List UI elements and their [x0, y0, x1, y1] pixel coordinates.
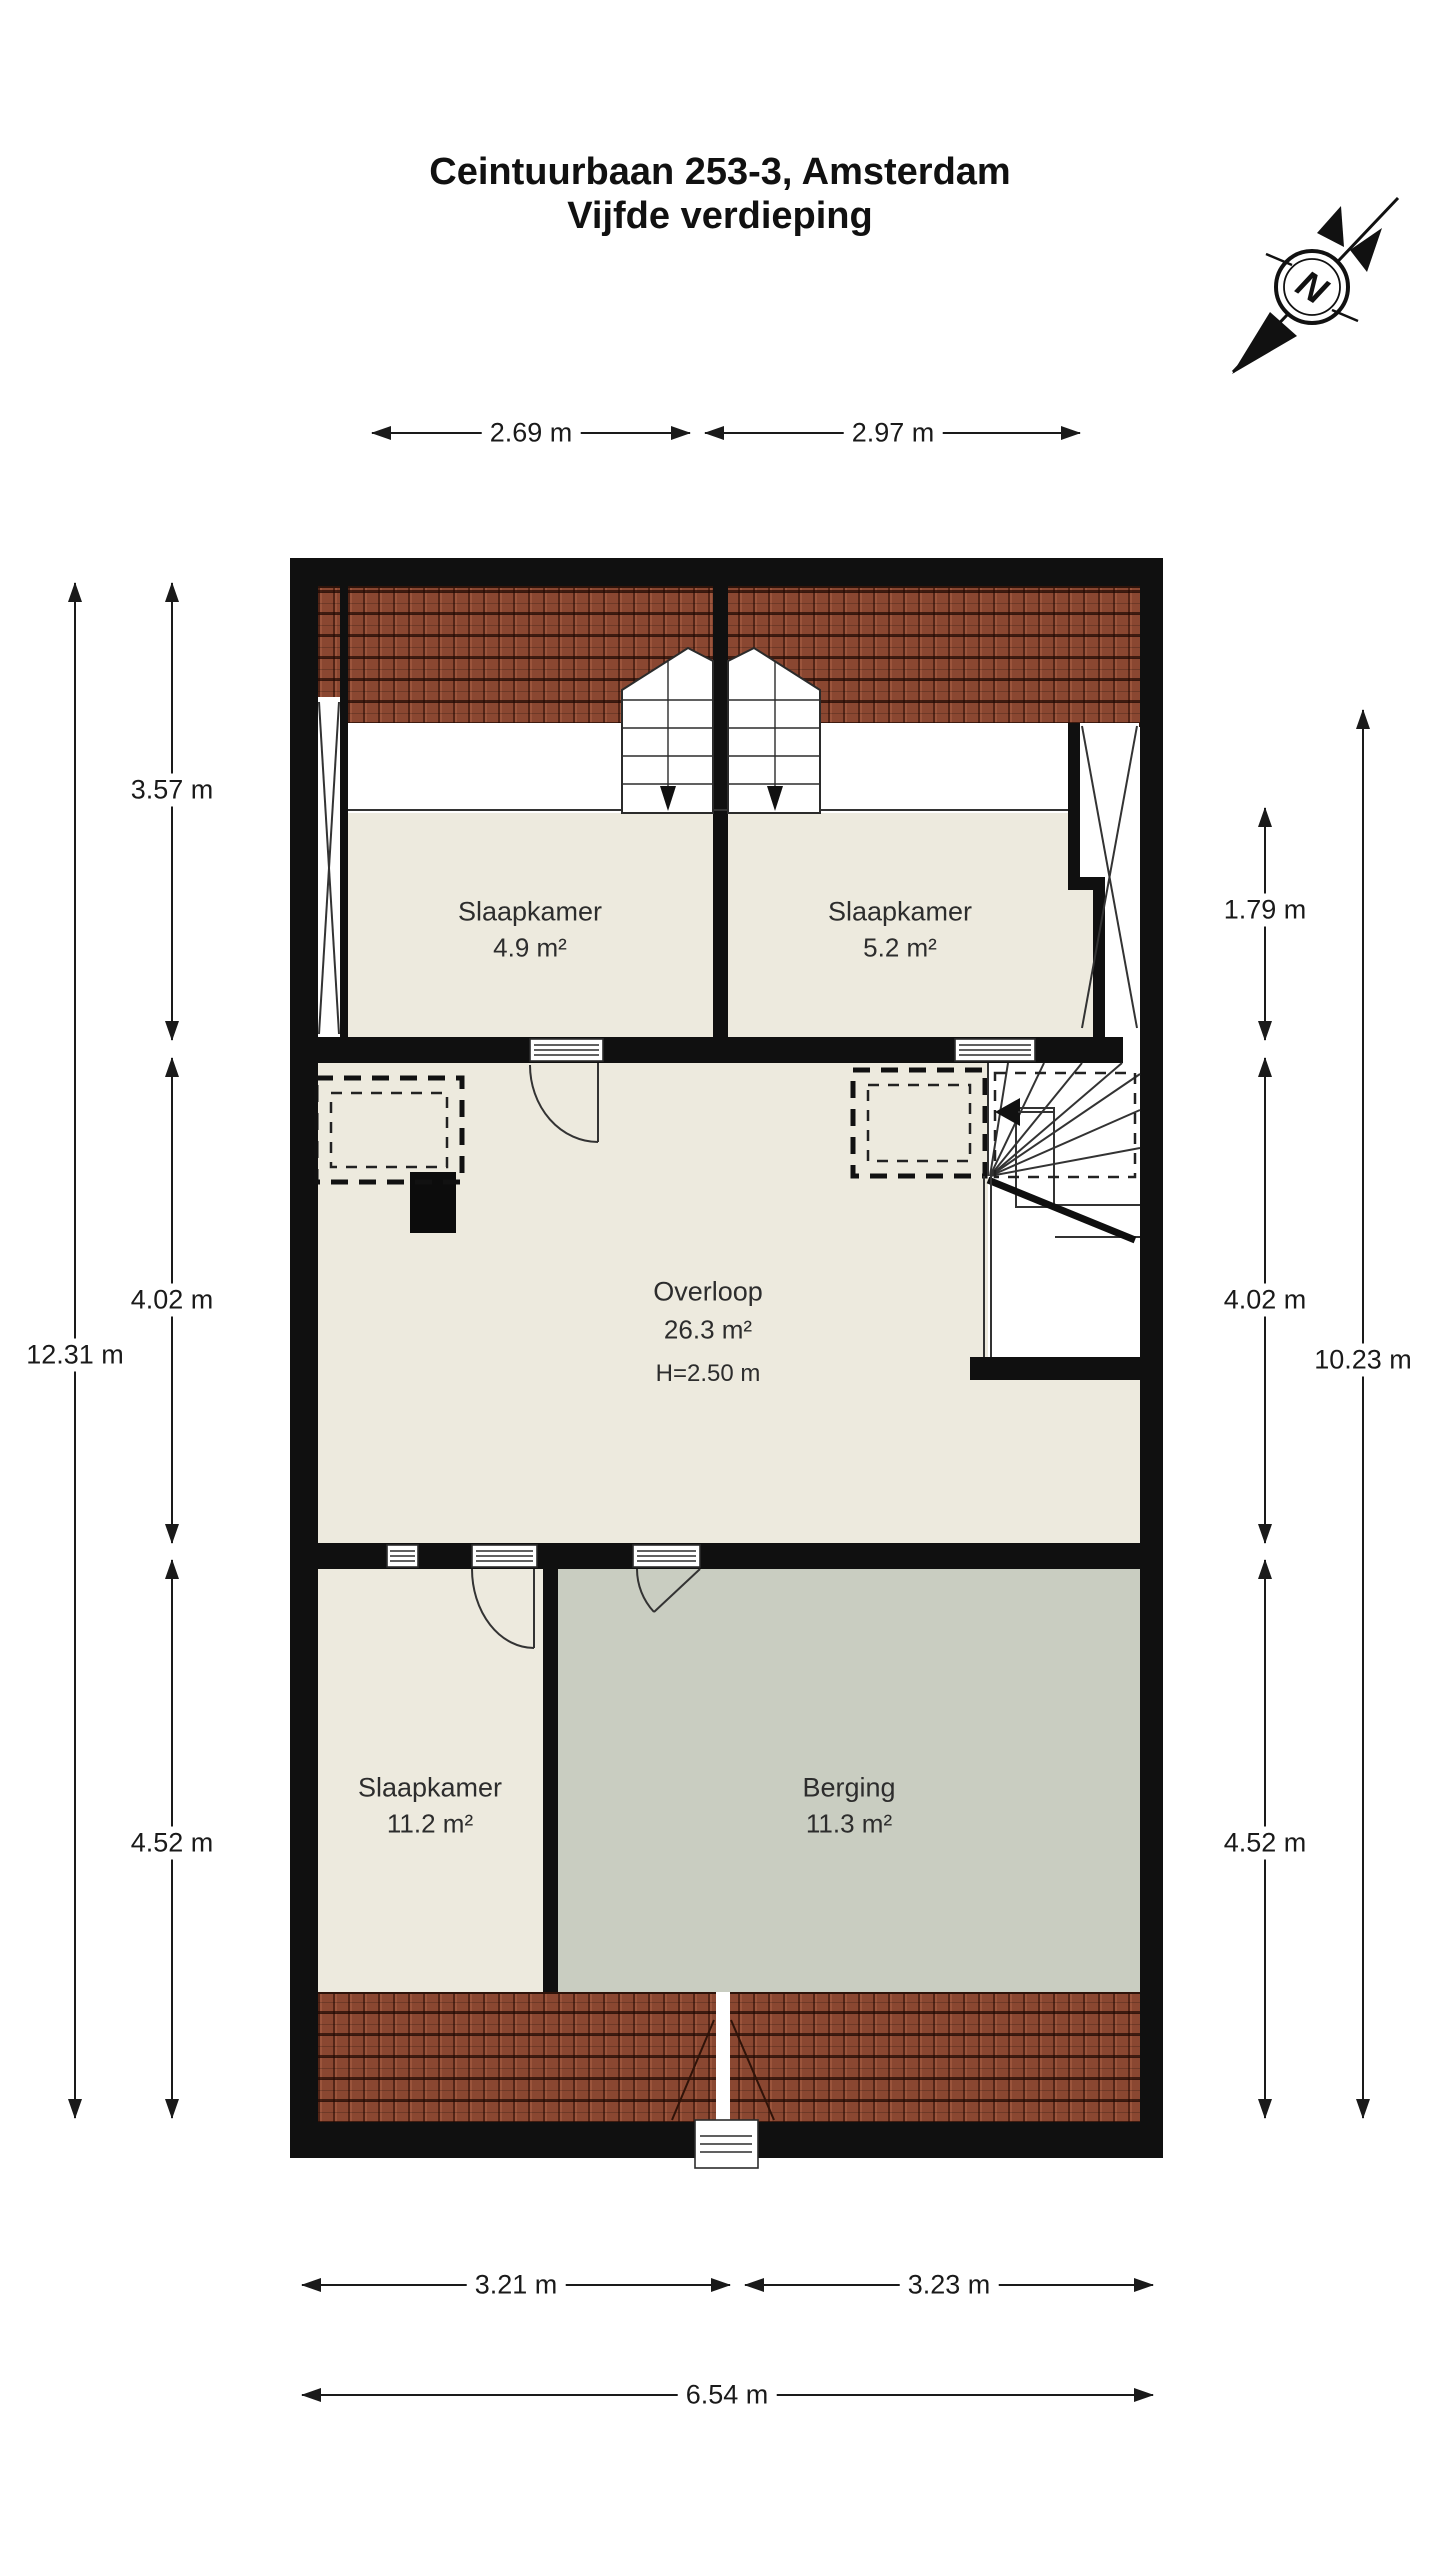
- side-window-left-icon: [319, 702, 339, 1034]
- room-label-bedroom-tl: Slaapkamer: [458, 897, 602, 928]
- room-label-storage: Berging: [802, 1773, 895, 1804]
- room-area-bedroom-tr: 5.2 m²: [863, 933, 937, 964]
- dimension-label: 3.57 m: [123, 774, 222, 807]
- side-window-right-icon: [1082, 726, 1137, 1028]
- door-storage: [637, 1569, 700, 1612]
- dimension-label: 3.23 m: [900, 2269, 999, 2302]
- compass-icon: N: [1232, 198, 1398, 374]
- window-symbol: [530, 1039, 603, 1061]
- dimension-label: 6.54 m: [678, 2379, 777, 2412]
- window-symbol: [633, 1545, 700, 1567]
- room-label-bedroom-b: Slaapkamer: [358, 1773, 502, 1804]
- door-bedroom-b: [472, 1569, 534, 1648]
- dimension-label: 10.23 m: [1306, 1344, 1420, 1377]
- room-area-bedroom-tl: 4.9 m²: [493, 933, 567, 964]
- skylight-left: [316, 1078, 462, 1182]
- dimension-label: 3.21 m: [467, 2269, 566, 2302]
- room-area-storage: 11.3 m²: [806, 1809, 892, 1840]
- dimension-label: 12.31 m: [18, 1339, 132, 1372]
- staircase: [984, 1063, 1140, 1357]
- room-area-bedroom-b: 11.2 m²: [387, 1809, 473, 1840]
- floorplan-canvas: Ceintuurbaan 253-3, Amsterdam Vijfde ver…: [0, 0, 1440, 2560]
- dormer-window-left: [622, 648, 713, 813]
- roof-valley-lines: [672, 2020, 774, 2120]
- dimension-label: 4.02 m: [123, 1284, 222, 1317]
- window-symbol: [472, 1545, 537, 1567]
- room-label-bedroom-tr: Slaapkamer: [828, 897, 972, 928]
- dimension-label: 4.52 m: [1216, 1827, 1315, 1860]
- dimension-label: 1.79 m: [1216, 894, 1315, 927]
- dimension-label: 2.97 m: [844, 417, 943, 450]
- dimension-label: 2.69 m: [482, 417, 581, 450]
- window-symbol: [387, 1545, 418, 1567]
- dimension-label: 4.52 m: [123, 1827, 222, 1860]
- room-label-landing: Overloop: [653, 1277, 763, 1308]
- door-bedroom-tl: [530, 1063, 598, 1142]
- dimension-lines: [75, 433, 1363, 2395]
- dimension-label: 4.02 m: [1216, 1284, 1315, 1317]
- room-ceiling-height: H=2.50 m: [656, 1360, 761, 1388]
- dormer-window-right: [728, 648, 820, 813]
- skylight-right: [853, 1070, 985, 1176]
- window-symbol: [955, 1039, 1035, 1061]
- room-area-landing: 26.3 m²: [664, 1315, 752, 1346]
- window-symbol-facade: [695, 2120, 758, 2168]
